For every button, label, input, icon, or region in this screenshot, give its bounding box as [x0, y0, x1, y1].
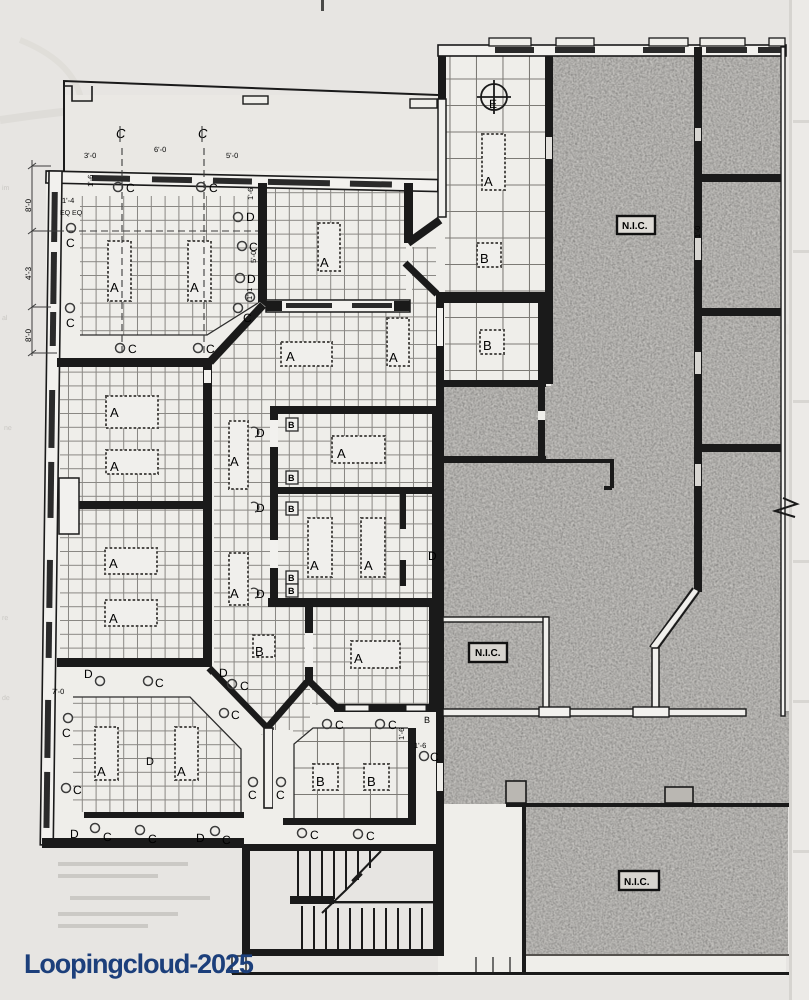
svg-text:A: A [337, 446, 346, 461]
svg-text:A: A [230, 454, 239, 469]
svg-text:A: A [354, 651, 363, 666]
svg-text:D: D [247, 272, 256, 286]
svg-text:C: C [310, 828, 319, 842]
svg-text:1'-6: 1'-6 [246, 188, 255, 200]
svg-text:A: A [109, 611, 118, 626]
svg-text:B: B [288, 573, 295, 583]
svg-text:1'-0: 1'-0 [693, 226, 702, 238]
svg-text:4'-3: 4'-3 [24, 266, 33, 280]
svg-text:B: B [288, 420, 295, 430]
svg-text:A: A [110, 459, 119, 474]
svg-text:1'-6: 1'-6 [397, 728, 406, 740]
svg-text:5'-0: 5'-0 [249, 251, 258, 263]
svg-text:B: B [316, 774, 325, 789]
svg-text:B: B [255, 644, 264, 659]
svg-text:al: al [2, 314, 8, 322]
svg-text:N.I.C.: N.I.C. [622, 221, 648, 232]
svg-text:C: C [209, 181, 218, 195]
svg-text:1'-1: 1'-1 [245, 288, 254, 300]
svg-text:A: A [484, 174, 493, 189]
svg-text:E: E [489, 97, 497, 111]
svg-text:C: C [243, 311, 252, 325]
svg-text:re: re [2, 615, 8, 622]
svg-text:C: C [148, 832, 157, 846]
svg-text:B: B [288, 504, 295, 514]
svg-text:C: C [248, 788, 257, 802]
svg-text:A: A [364, 558, 373, 573]
svg-text:C: C [240, 679, 249, 693]
svg-text:C: C [128, 342, 137, 356]
svg-text:A: A [110, 405, 119, 420]
svg-text:B: B [483, 338, 492, 353]
svg-text:N.I.C.: N.I.C. [475, 648, 501, 659]
svg-text:C: C [73, 783, 82, 797]
svg-text:A: A [109, 556, 118, 571]
svg-text:A: A [286, 349, 295, 364]
svg-text:B: B [480, 251, 489, 266]
svg-text:C: C [430, 750, 439, 764]
svg-text:im: im [2, 184, 10, 192]
svg-text:C: C [366, 829, 375, 843]
svg-text:C: C [222, 833, 231, 847]
svg-text:C: C [231, 708, 240, 722]
svg-text:C: C [62, 726, 71, 740]
svg-text:1'-4: 1'-4 [62, 196, 74, 205]
svg-text:A: A [230, 586, 239, 601]
svg-text:ne: ne [4, 425, 12, 432]
svg-text:8'-0: 8'-0 [24, 198, 33, 212]
svg-text:C: C [198, 126, 208, 141]
svg-text:B: B [367, 774, 376, 789]
svg-text:D: D [70, 827, 79, 841]
svg-text:C: C [66, 316, 75, 330]
svg-text:6'-0: 6'-0 [154, 145, 166, 154]
svg-text:C: C [335, 718, 344, 732]
svg-text:A: A [190, 280, 199, 295]
svg-text:D: D [146, 756, 154, 768]
svg-text:EQ EQ: EQ EQ [60, 210, 83, 217]
svg-text:1'-6: 1'-6 [414, 741, 426, 750]
svg-text:A: A [97, 764, 106, 779]
svg-text:C: C [103, 830, 112, 844]
svg-text:3'-0: 3'-0 [84, 151, 96, 160]
svg-text:B: B [288, 473, 295, 483]
svg-text:B: B [424, 715, 430, 725]
svg-text:C: C [66, 236, 75, 250]
svg-text:D: D [219, 666, 228, 680]
svg-text:C: C [155, 676, 164, 690]
svg-text:5'-0: 5'-0 [226, 151, 238, 160]
svg-text:1'-6: 1'-6 [86, 175, 95, 187]
svg-text:A: A [110, 280, 119, 295]
svg-text:Loopingcloud-2025: Loopingcloud-2025 [24, 949, 254, 979]
svg-text:B: B [288, 586, 295, 596]
svg-text:A: A [310, 558, 319, 573]
svg-text:C: C [116, 126, 126, 141]
svg-text:A: A [177, 764, 186, 779]
svg-text:N.I.C.: N.I.C. [624, 877, 650, 888]
svg-text:D: D [246, 210, 255, 224]
svg-text:D: D [84, 667, 93, 681]
svg-text:de: de [2, 694, 10, 702]
svg-text:7'-0: 7'-0 [52, 687, 64, 696]
svg-text:D: D [196, 831, 205, 845]
svg-text:C: C [126, 181, 135, 195]
svg-text:A: A [320, 255, 329, 270]
svg-text:C: C [206, 342, 215, 356]
svg-text:D: D [428, 549, 437, 563]
svg-text:A: A [389, 350, 398, 365]
svg-text:8'-0: 8'-0 [24, 328, 33, 342]
svg-text:C: C [276, 788, 285, 802]
svg-text:C: C [388, 718, 397, 732]
